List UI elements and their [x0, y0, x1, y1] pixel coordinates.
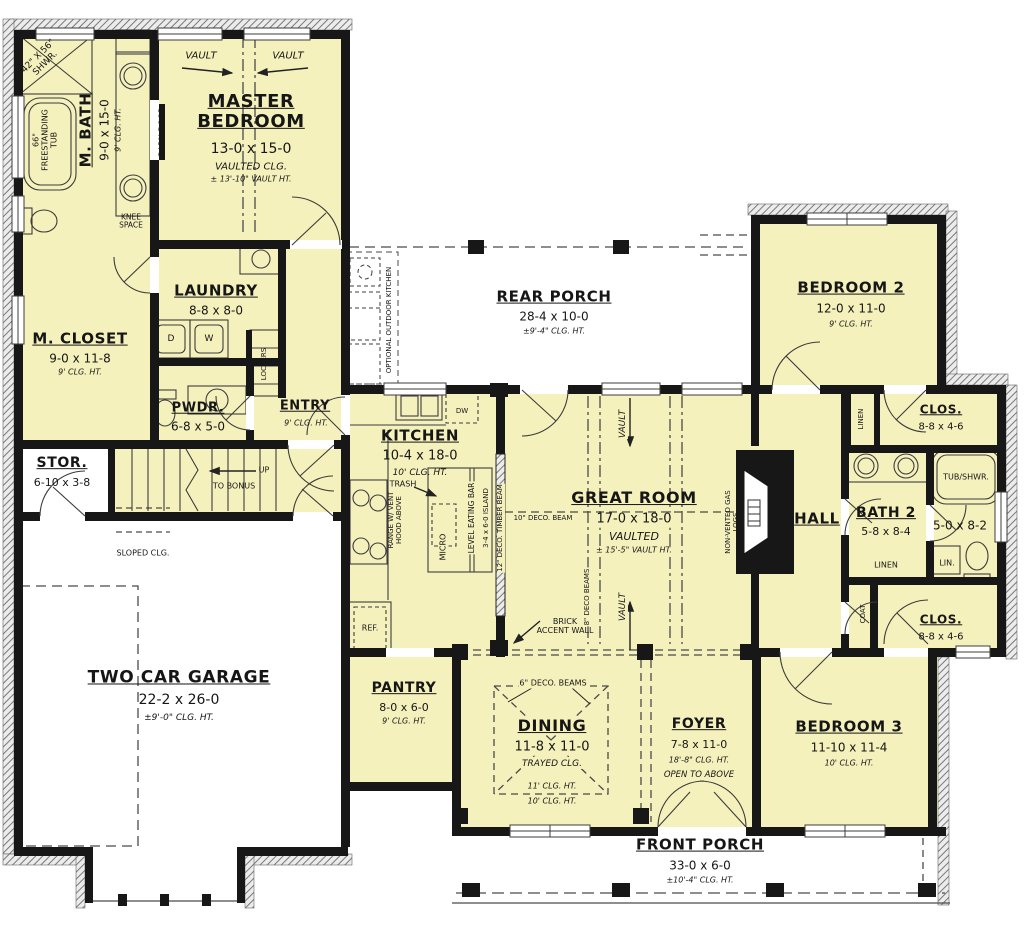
lockers-label: LOCKERS: [261, 348, 269, 380]
washer-label: W: [205, 334, 214, 344]
floor-plan-drawing: [0, 0, 1024, 927]
stor-dims: 6-10 x 3-8: [34, 477, 90, 489]
dining-trayed-note: TRAYED CLG.: [521, 759, 583, 769]
clos-bed2-name: CLOS.: [920, 403, 962, 416]
dining-11-clg-note: 11' CLG. HT.: [527, 783, 578, 792]
front-porch-ceiling-note: ±10'-4" CLG. HT.: [666, 877, 733, 886]
island-label: 3-4 x 6-0 ISLAND: [483, 487, 491, 549]
bedroom3-dims: 11-10 x 11-4: [811, 741, 888, 754]
rear-porch-ceiling-note: ±9'-4" CLG. HT.: [523, 328, 585, 337]
entry-name: ENTRY: [280, 400, 330, 415]
knee-space-label: KNEE SPACE: [110, 214, 152, 231]
sloped-clg-label: SLOPED CLG.: [117, 550, 170, 559]
pantry-name: PANTRY: [372, 681, 437, 697]
bedroom2-ceiling-note: 9' CLG. HT.: [829, 321, 873, 330]
pantry-dims: 8-0 x 6-0: [379, 702, 428, 714]
m-closet-ceiling-note: 9' CLG. HT.: [58, 369, 102, 378]
laundry-name: LAUNDRY: [174, 283, 258, 300]
bath2-dims: 5-8 x 8-4: [861, 526, 910, 538]
timber-beam-label: 12" DECO. TIMBER BEAM: [497, 483, 505, 572]
entry-ceiling-note: 9' CLG. HT.: [284, 420, 328, 429]
bath2-name: BATH 2: [856, 506, 916, 522]
dryer-label: D: [168, 334, 175, 344]
rear-porch-dims: 28-4 x 10-0: [519, 310, 588, 323]
master-bedroom-vault-note: ± 13'-10" VAULT HT.: [210, 176, 291, 185]
clos-bed2-dims: 8-8 x 4-6: [919, 421, 964, 432]
master-bedroom-ceiling-note: VAULTED CLG.: [215, 161, 287, 172]
great-room-vault-ht-note: ± 15'-5" VAULT HT.: [595, 547, 673, 556]
dining-dims: 11-8 x 11-0: [514, 741, 591, 756]
bedroom2-name: BEDROOM 2: [797, 280, 904, 297]
pwdr-dims: 6-8 x 5-0: [171, 420, 225, 433]
tub-shwr-label: TUB/SHWR.: [943, 474, 989, 483]
foyer-name: FOYER: [672, 717, 726, 733]
bedroom3-ceiling-note: 10' CLG. HT.: [825, 760, 874, 769]
front-porch-dims: 33-0 x 6-0: [669, 859, 731, 872]
front-porch-name: FRONT PORCH: [636, 837, 764, 854]
stairs-up-label: UP: [259, 467, 270, 476]
dining-name: DINING: [517, 717, 588, 735]
m-closet-dims: 9-0 x 11-8: [49, 352, 111, 365]
clos-bed3-name: CLOS.: [920, 613, 962, 626]
eating-bar-label: LEVEL EATING BAR: [468, 482, 476, 555]
deco-beam-10-label: 10" DECO. BEAM: [513, 515, 574, 523]
m-bath-dims: 9-0 x 15-0: [98, 99, 111, 161]
foyer-open-note: OPEN TO ABOVE: [664, 771, 734, 781]
outdoor-kitchen-label: OPTIONAL OUTDOOR KITCHEN: [386, 267, 394, 373]
floor-plan: 42" X 56" SHWR. 66" FREESTANDING TUB M. …: [0, 0, 1024, 927]
rear-porch-name: REAR PORCH: [496, 289, 611, 306]
garage-name: TWO CAR GARAGE: [88, 668, 271, 687]
tub-label: 66" FREESTANDING TUB: [33, 103, 60, 177]
bedroom3-name: BEDROOM 3: [795, 719, 902, 736]
ref-label: REF.: [362, 625, 378, 634]
m-bath-name: M. BATH: [78, 93, 95, 168]
vault-label-left: VAULT: [185, 50, 216, 61]
great-room-name: GREAT ROOM: [571, 489, 696, 507]
dw-label: DW: [456, 408, 468, 416]
kitchen-ceiling-note: 10' CLG. HT.: [393, 468, 448, 478]
coat-label: COAT: [860, 605, 868, 624]
bath3-dims: 5-0 x 8-2: [933, 519, 987, 532]
linen-label-bedroom2: LINEN: [858, 409, 866, 430]
m-closet-name: M. CLOSET: [32, 331, 127, 348]
garage-dims: 22-2 x 26-0: [139, 693, 220, 709]
master-bedroom-name: MASTER BEDROOM: [164, 92, 339, 132]
bedroom2-dims: 12-0 x 11-0: [816, 302, 885, 315]
range-hood-label: RANGE W/ VENT HOOD ABOVE: [388, 488, 404, 552]
micro-label: MICRO: [440, 533, 449, 562]
dining-10-clg-note: 10' CLG. HT.: [528, 798, 577, 807]
stor-name: STOR.: [37, 456, 88, 472]
m-bath-ceiling-note: 9' CLG. HT.: [115, 108, 124, 152]
pantry-ceiling-note: 9' CLG. HT.: [382, 718, 426, 727]
hall-name: HALL: [794, 511, 840, 528]
brick-accent-label: BRICK ACCENT WALL: [536, 618, 594, 636]
foyer-dims: 7-8 x 11-0: [671, 739, 727, 751]
pwdr-name: PWDR.: [172, 402, 225, 417]
deco-beams-6-label: 6" DECO. BEAMS: [518, 680, 587, 689]
kitchen-dims: 10-4 x 18-0: [383, 450, 458, 465]
vault-label-right: VAULT: [272, 50, 303, 61]
lin-label-bath3: LIN.: [939, 560, 954, 569]
garage-ceiling-note: ±9'-0" CLG. HT.: [144, 713, 214, 723]
great-room-dims: 17-0 x 18-0: [596, 513, 673, 528]
foyer-ceiling-note: 18'-8" CLG. HT.: [669, 757, 729, 766]
linen-label-mbath: LIN.: [124, 31, 141, 41]
clos-bed3-dims: 8-8 x 4-6: [919, 631, 964, 642]
vault-label-down: VAULT: [618, 409, 628, 439]
great-room-vaulted-note: VAULTED: [608, 531, 660, 543]
to-bonus-label: TO BONUS: [213, 483, 255, 492]
kitchen-name: KITCHEN: [381, 428, 459, 445]
vault-label-up: VAULT: [618, 592, 628, 622]
laundry-dims: 8-8 x 8-0: [189, 304, 243, 317]
gas-logs-label: NON-VENTED GAS LOGS: [725, 490, 741, 554]
master-bedroom-dims: 13-0 x 15-0: [211, 142, 292, 158]
linen-label-bath2: LINEN: [874, 562, 898, 571]
